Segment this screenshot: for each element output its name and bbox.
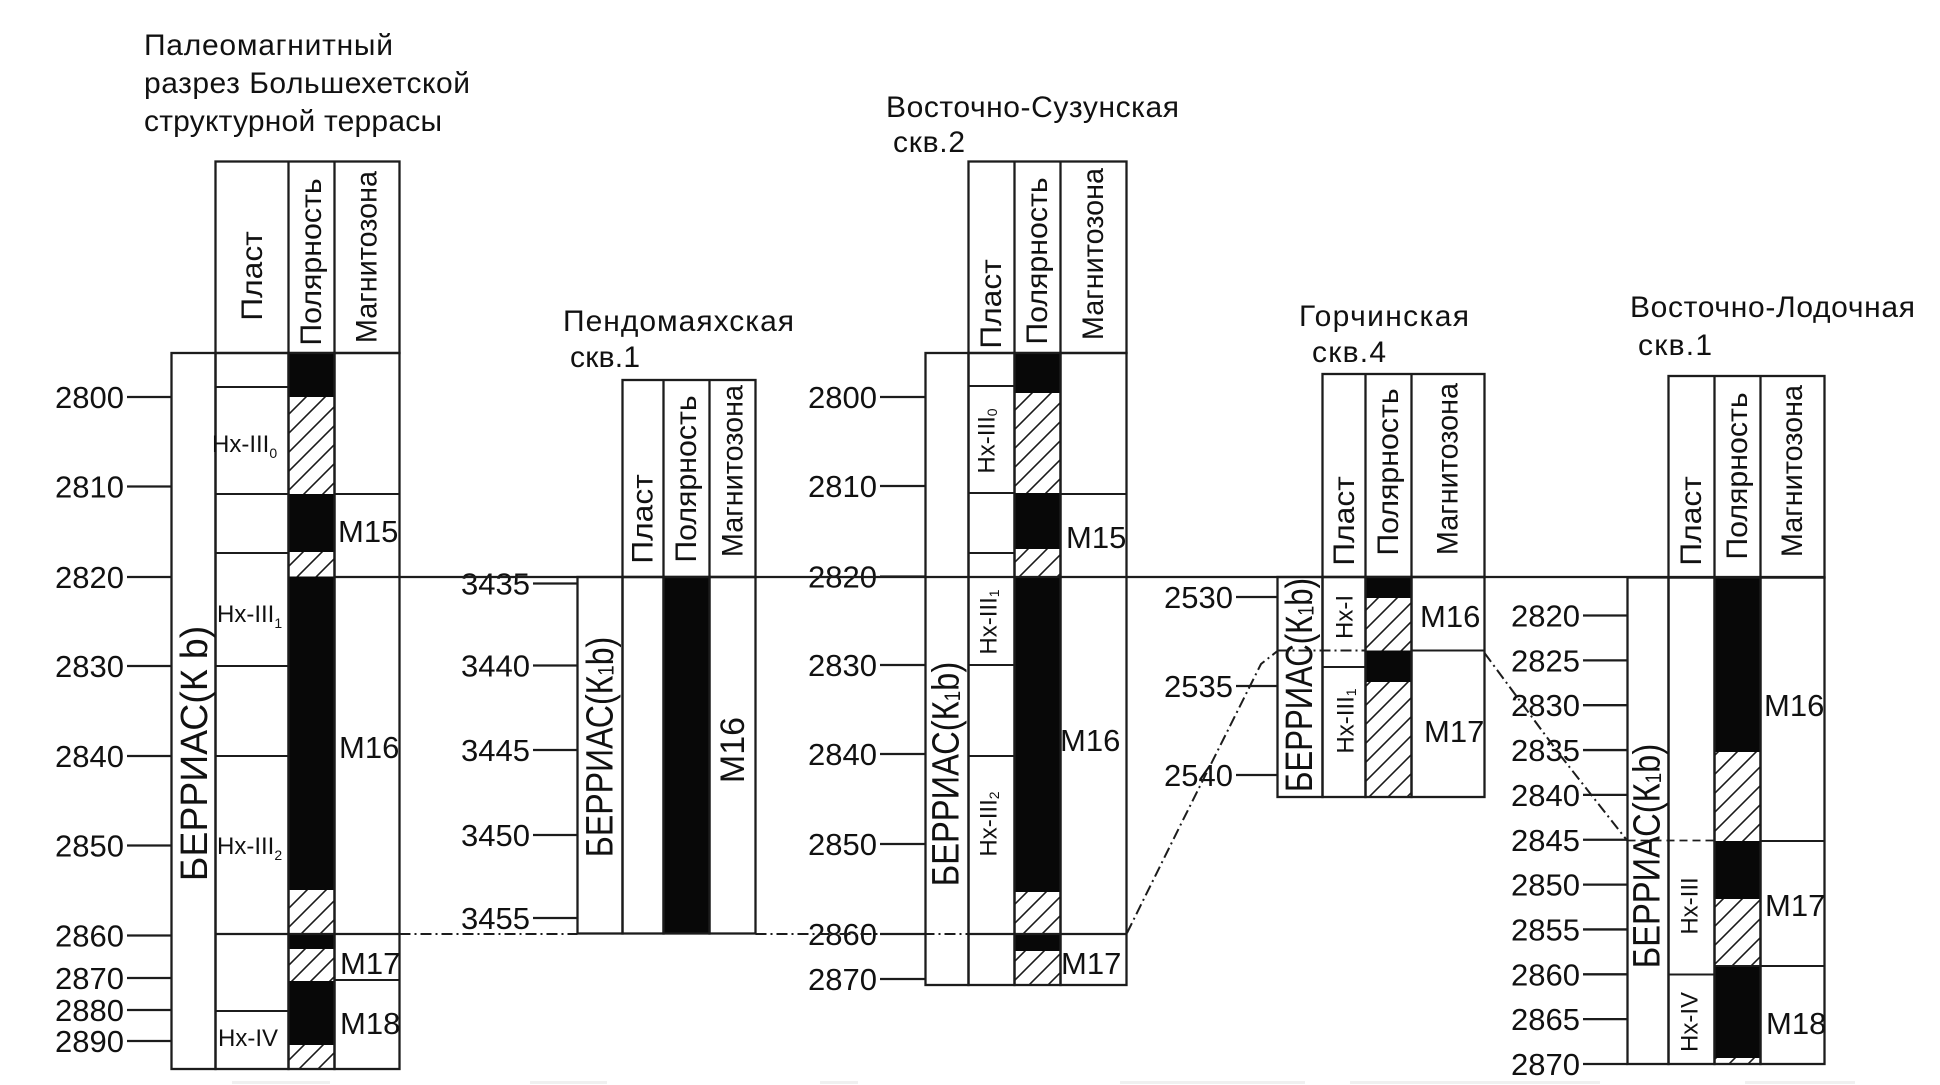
svg-text:Hx-III1: Hx-III1 <box>976 589 1003 654</box>
svg-text:2890: 2890 <box>55 1024 124 1059</box>
svg-text:скв.4: скв.4 <box>1312 336 1386 369</box>
svg-text:2840: 2840 <box>808 737 877 772</box>
svg-text:2850: 2850 <box>55 829 124 864</box>
svg-text:М17: М17 <box>1424 714 1484 749</box>
svg-text:2880: 2880 <box>55 993 124 1028</box>
svg-text:М15: М15 <box>338 514 398 549</box>
svg-text:Пендомаяхская: Пендомаяхская <box>563 305 794 338</box>
svg-text:2860: 2860 <box>1511 957 1580 992</box>
svg-text:М16: М16 <box>1764 688 1824 723</box>
svg-text:М18: М18 <box>1766 1006 1826 1041</box>
svg-text:М17: М17 <box>1061 946 1121 981</box>
svg-text:3440: 3440 <box>461 649 530 684</box>
svg-text:Палеомагнитный: Палеомагнитный <box>144 29 393 62</box>
svg-text:2870: 2870 <box>55 961 124 996</box>
svg-text:2845: 2845 <box>1511 823 1580 858</box>
svg-text:2810: 2810 <box>808 469 877 504</box>
svg-text:2800: 2800 <box>808 380 877 415</box>
svg-text:Магнитозона: Магнитозона <box>1431 382 1465 555</box>
svg-text:Hx-III: Hx-III <box>1677 877 1704 934</box>
svg-text:Пласт: Пласт <box>235 231 269 321</box>
svg-text:БЕРРИАС(К b): БЕРРИАС(К b) <box>173 626 215 881</box>
svg-text:2810: 2810 <box>55 470 124 505</box>
svg-text:2865: 2865 <box>1511 1002 1580 1037</box>
svg-text:Пласт: Пласт <box>974 259 1008 349</box>
svg-text:Hx-III1: Hx-III1 <box>1333 688 1360 753</box>
svg-text:2800: 2800 <box>55 380 124 415</box>
svg-text:Полярность: Полярность <box>1721 392 1754 559</box>
svg-text:Пласт: Пласт <box>626 474 660 564</box>
svg-text:Восточно-Сузунская: Восточно-Сузунская <box>886 91 1179 124</box>
svg-text:2835: 2835 <box>1511 733 1580 768</box>
svg-text:Пласт: Пласт <box>1674 476 1708 566</box>
svg-text:2870: 2870 <box>1511 1047 1580 1082</box>
svg-text:М16: М16 <box>714 717 752 783</box>
svg-text:Восточно-Лодочная: Восточно-Лодочная <box>1630 291 1915 324</box>
svg-text:2830: 2830 <box>55 649 124 684</box>
svg-text:3455: 3455 <box>461 901 530 936</box>
svg-text:Hx-III2: Hx-III2 <box>217 833 282 863</box>
svg-text:2870: 2870 <box>808 962 877 997</box>
svg-text:2535: 2535 <box>1164 669 1233 704</box>
svg-text:Магнитозона: Магнитозона <box>716 384 750 557</box>
svg-text:М16: М16 <box>339 730 399 765</box>
svg-text:2530: 2530 <box>1164 580 1233 615</box>
svg-text:Hx-III2: Hx-III2 <box>976 791 1003 856</box>
svg-text:скв.1: скв.1 <box>1638 329 1712 362</box>
svg-text:Полярность: Полярность <box>670 395 703 562</box>
svg-text:Hx-III1: Hx-III1 <box>217 601 282 631</box>
svg-text:разрез Большехетской: разрез Большехетской <box>144 67 470 100</box>
svg-text:Hx-I: Hx-I <box>1332 595 1359 639</box>
svg-text:Магнитозона: Магнитозона <box>1776 384 1810 557</box>
svg-text:2540: 2540 <box>1164 758 1233 793</box>
svg-text:Магнитозона: Магнитозона <box>350 170 384 343</box>
svg-text:М18: М18 <box>340 1006 400 1041</box>
svg-text:2825: 2825 <box>1511 643 1580 678</box>
svg-text:М17: М17 <box>1765 888 1825 923</box>
svg-text:М16: М16 <box>1060 723 1120 758</box>
svg-text:М16: М16 <box>1420 599 1480 634</box>
svg-text:М15: М15 <box>1066 520 1126 555</box>
svg-text:скв.1: скв.1 <box>570 341 640 374</box>
svg-text:2855: 2855 <box>1511 912 1580 947</box>
svg-text:2820: 2820 <box>55 560 124 595</box>
svg-text:Hx-IV: Hx-IV <box>218 1025 278 1052</box>
svg-text:2830: 2830 <box>1511 688 1580 723</box>
svg-text:3435: 3435 <box>461 567 530 602</box>
svg-text:структурной террасы: структурной террасы <box>144 105 442 138</box>
svg-text:2840: 2840 <box>55 739 124 774</box>
svg-text:Полярность: Полярность <box>1372 388 1405 555</box>
svg-text:3445: 3445 <box>461 733 530 768</box>
svg-text:Полярность: Полярность <box>1021 177 1054 344</box>
svg-text:скв.2: скв.2 <box>893 126 965 159</box>
svg-text:Магнитозона: Магнитозона <box>1077 167 1111 340</box>
svg-text:2820: 2820 <box>1511 599 1580 634</box>
svg-text:Пласт: Пласт <box>1327 476 1361 566</box>
svg-text:2830: 2830 <box>808 648 877 683</box>
svg-text:3450: 3450 <box>461 818 530 853</box>
svg-text:Hx-III0: Hx-III0 <box>974 408 1001 473</box>
svg-text:Полярность: Полярность <box>295 178 328 345</box>
svg-text:М17: М17 <box>340 946 400 981</box>
svg-text:2850: 2850 <box>1511 868 1580 903</box>
svg-text:2850: 2850 <box>808 827 877 862</box>
svg-text:2840: 2840 <box>1511 778 1580 813</box>
svg-text:Hx-IV: Hx-IV <box>1677 992 1704 1052</box>
svg-text:2860: 2860 <box>55 919 124 954</box>
svg-text:Hx-III0: Hx-III0 <box>212 431 277 461</box>
